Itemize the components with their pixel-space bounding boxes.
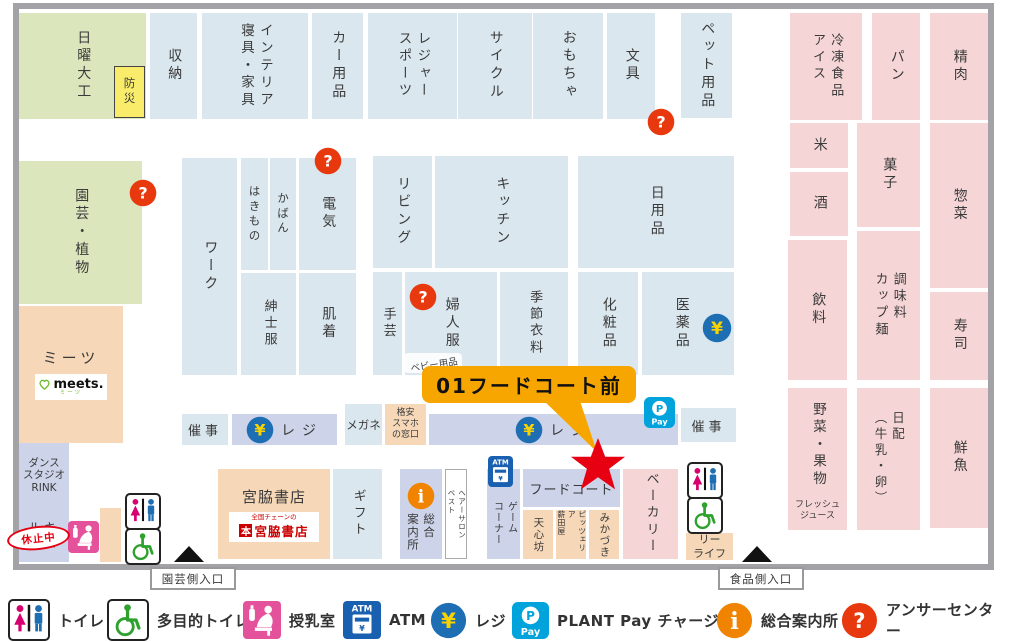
toilet-icon-map-east: [687, 462, 723, 499]
answer-center-icon-gardening: ?: [129, 179, 157, 207]
accessible-toilet-icon-legend: [107, 599, 149, 641]
zone-underwear: 肌着: [299, 273, 356, 375]
zone-tenshinbo: 天心坊: [523, 510, 553, 559]
svg-text:?: ?: [418, 288, 427, 307]
svg-text:Pay: Pay: [521, 626, 541, 637]
zone-kitchen: キッチン: [435, 156, 568, 268]
food-entrance-label: 食品側入口: [718, 567, 804, 590]
legend-nursing-room: 授乳室: [243, 600, 336, 640]
zone-leisure-sports: レジャー スポーツ: [368, 13, 457, 119]
svg-text:Pay: Pay: [651, 417, 668, 427]
plant-pay-icon-legend: PPay: [512, 602, 549, 639]
answer-center-icon-womens: ?: [409, 283, 437, 311]
atm-icon-legend: ATM¥: [343, 601, 381, 639]
svg-text:¥: ¥: [523, 420, 535, 439]
meets-logo: meets. ミーツ: [35, 374, 107, 400]
zone-cosmetics: 化粧品: [578, 272, 638, 375]
svg-text:?: ?: [323, 152, 332, 171]
register-icon-legend: ¥: [430, 602, 467, 639]
zone-interior: インテリア 寝具・家具: [202, 13, 308, 119]
zone-gardening: 園芸・植物: [19, 161, 142, 304]
zone-daily-goods: 日用品: [578, 156, 734, 268]
store-floor-map: 日曜大工 防災 収納 インテリア 寝具・家具 カー用品 レジャー スポーツ サイ…: [0, 0, 1009, 642]
svg-text:?: ?: [656, 113, 665, 132]
zone-daily-dairy: 日配 （牛乳・卵）: [857, 388, 920, 530]
zone-bosai: 防災: [114, 66, 145, 118]
garden-entrance-label: 園芸側入口: [150, 567, 236, 590]
legend-toilet: トイレ: [8, 600, 105, 640]
legend-accessible-toilet: 多目的トイレ: [107, 600, 250, 640]
zone-frozen-ice: 冷凍食品 アイス: [790, 13, 862, 120]
info-center-icon-legend: i: [716, 602, 753, 639]
svg-text:i: i: [418, 487, 425, 507]
toilet-icon-legend: [8, 599, 50, 641]
zone-smartphone-counter: 格安 スマホ の窓口: [385, 404, 426, 445]
answer-center-icon-legend: ?: [841, 602, 878, 639]
zone-living: リビング: [373, 156, 432, 268]
accessible-toilet-icon-map-west: [125, 528, 161, 565]
zone-meets: ミーツ meets. ミーツ: [19, 306, 123, 443]
svg-text:ATM: ATM: [352, 604, 373, 614]
zone-sushi: 寿司: [930, 292, 988, 380]
svg-text:?: ?: [138, 184, 147, 203]
zone-saiji-left: 催事: [182, 414, 228, 445]
svg-text:?: ?: [853, 608, 865, 633]
zone-pet-goods: ペット用品: [681, 13, 732, 118]
zone-fish: 鮮魚: [930, 388, 988, 528]
zone-glasses: メガネ: [345, 404, 382, 445]
toilet-icon-map-west: [125, 493, 161, 530]
info-center-icon-map: i: [407, 482, 435, 510]
zone-mikazuki: みかづき: [589, 510, 619, 559]
legend-atm: ATM¥ ATM: [343, 600, 426, 640]
plant-pay-charge-icon-map: PPay: [644, 397, 675, 428]
zone-hair-salon: ヘアーサロン ベスト: [445, 469, 467, 559]
register-icon-medicine: ¥: [702, 313, 732, 343]
zone-gift: ギフト: [333, 469, 382, 559]
zone-info-center: i 総合 案内所: [400, 469, 442, 559]
accessible-toilet-icon-map-east: [687, 497, 723, 534]
legend-info-center: i 総合案内所: [716, 600, 839, 640]
svg-text:P: P: [526, 609, 535, 623]
zone-beverages: 飲料: [788, 240, 847, 380]
zone-meat: 精肉: [930, 13, 988, 120]
svg-text:ATM: ATM: [492, 459, 508, 467]
zone-rice: 米: [790, 123, 848, 168]
zone-seasoning: 調味料 カップ麺: [857, 231, 920, 380]
legend-answer-center: ? アンサーセンター: [841, 600, 1009, 640]
svg-text:i: i: [730, 607, 739, 634]
miyawaki-logo: 全国チェーンの 本宮脇書店: [229, 512, 319, 542]
garden-entrance-arrow: [174, 546, 204, 562]
zone-fresh-juice: フレッシュ ジュース: [788, 496, 847, 526]
current-location-star: [570, 438, 626, 491]
zone-dance-studio: ダンス スタジオ RINK: [19, 443, 69, 508]
legend-register: ¥ レジ: [430, 600, 506, 640]
location-callout: 01フードコート前: [422, 366, 636, 403]
nursing-room-icon-legend: [243, 601, 281, 639]
zone-saiji-right: 催事: [681, 408, 736, 442]
atm-icon-map: ATM¥: [488, 456, 513, 487]
answer-center-icon-stationery: ?: [647, 108, 675, 136]
zone-pizzeria-makidaya: ピッツェリア 薪田屋: [556, 510, 586, 559]
svg-text:¥: ¥: [359, 624, 365, 633]
zone-lealife: リー ライフ: [686, 533, 733, 560]
zone-storage: 収納: [150, 13, 197, 119]
zone-footwear: はきもの: [241, 158, 268, 270]
zone-seasonal: 季節衣料: [500, 272, 568, 375]
zone-confectionery: 菓子: [857, 123, 920, 227]
pillar: [100, 508, 121, 562]
svg-text:¥: ¥: [254, 420, 266, 439]
zone-liquor: 酒: [790, 172, 848, 236]
zone-mens: 紳士服: [241, 273, 296, 375]
zone-bakery: ベーカリー: [623, 469, 678, 559]
zone-stationery: 文具: [607, 13, 655, 119]
svg-text:¥: ¥: [711, 319, 723, 339]
svg-text:P: P: [656, 404, 663, 415]
food-entrance-arrow: [742, 546, 772, 562]
meets-heart-icon: [38, 378, 51, 391]
svg-text:¥: ¥: [441, 608, 456, 633]
zone-miyawaki-books: 宮脇書店 全国チェーンの 本宮脇書店: [218, 469, 330, 559]
zone-deli: 惣菜: [930, 123, 988, 288]
register-icon-west: ¥: [246, 416, 274, 444]
zone-car-goods: カー用品: [312, 13, 363, 119]
zone-cycle: サイクル: [458, 13, 532, 119]
zone-bread: パン: [872, 13, 920, 120]
nursing-room-icon-map: [68, 521, 99, 553]
answer-center-icon-electronics: ?: [314, 147, 342, 175]
legend-plant-pay: PPay PLANT Pay チャージ機: [512, 600, 734, 640]
svg-text:¥: ¥: [498, 475, 503, 482]
zone-toys: おもちゃ: [533, 13, 603, 119]
register-band-west: ¥ レジ: [232, 414, 337, 445]
zone-bags: かばん: [270, 158, 296, 270]
zone-work: ワーク: [182, 158, 237, 375]
